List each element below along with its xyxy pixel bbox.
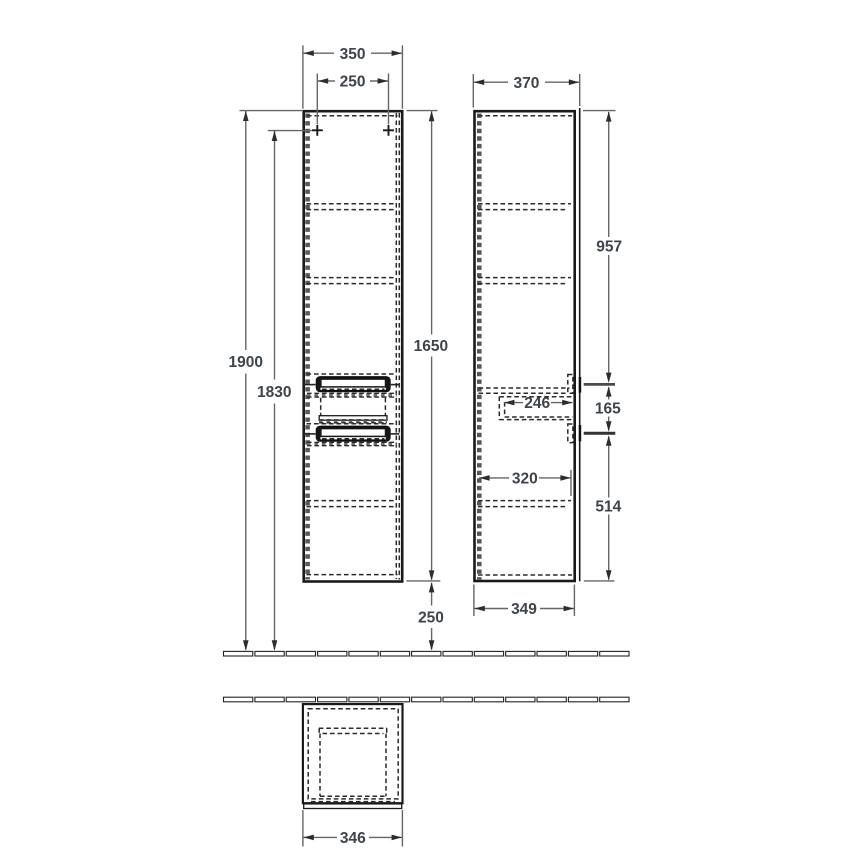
svg-text:514: 514 <box>595 499 621 516</box>
svg-text:349: 349 <box>511 601 537 618</box>
svg-text:350: 350 <box>340 46 366 63</box>
svg-text:246: 246 <box>524 395 550 412</box>
svg-text:250: 250 <box>340 74 366 91</box>
svg-text:165: 165 <box>595 401 621 418</box>
svg-text:1650: 1650 <box>414 338 448 355</box>
svg-text:346: 346 <box>340 830 366 847</box>
svg-text:1900: 1900 <box>229 354 263 371</box>
svg-text:1830: 1830 <box>257 384 291 401</box>
svg-text:250: 250 <box>418 609 444 626</box>
svg-text:957: 957 <box>596 239 622 256</box>
svg-text:320: 320 <box>512 470 538 487</box>
svg-text:370: 370 <box>513 75 539 92</box>
